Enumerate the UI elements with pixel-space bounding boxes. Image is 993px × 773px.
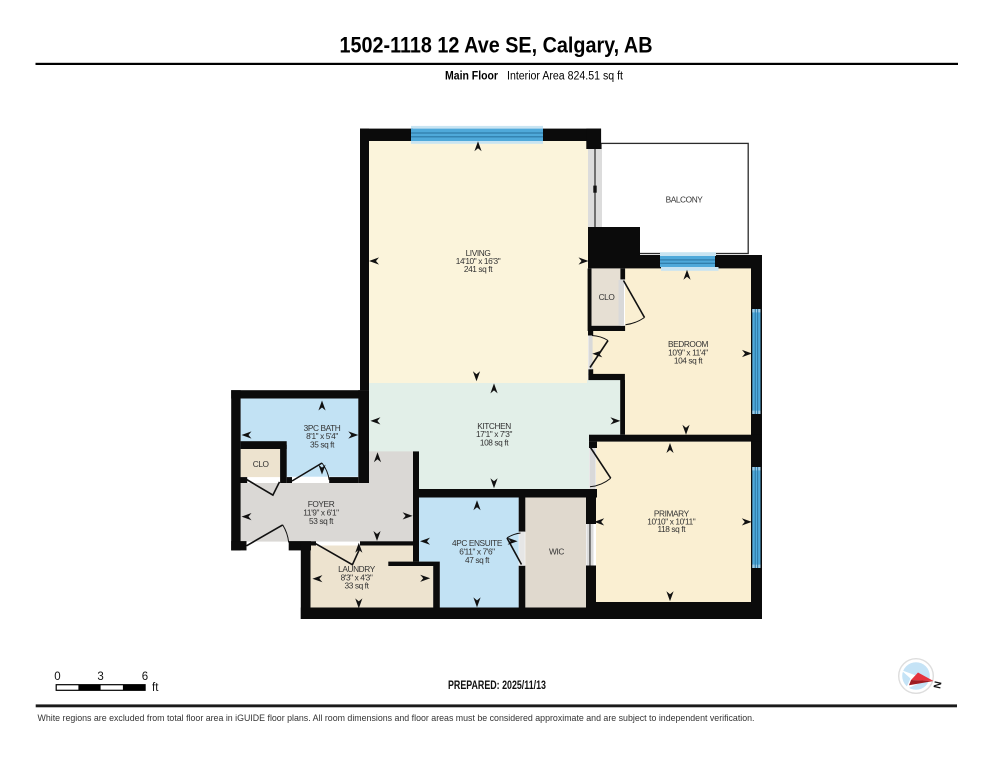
svg-text:WIC: WIC (549, 547, 564, 557)
svg-text:BALCONY: BALCONY (666, 195, 704, 205)
svg-text:118 sq ft: 118 sq ft (657, 524, 686, 534)
svg-text:53 sq ft: 53 sq ft (309, 516, 334, 526)
svg-text:0: 0 (54, 671, 60, 683)
svg-text:CLO: CLO (253, 459, 270, 469)
svg-text:3: 3 (97, 671, 103, 683)
svg-text:PREPARED: 2025/11/13: PREPARED: 2025/11/13 (448, 678, 546, 692)
svg-text:White regions are excluded fro: White regions are excluded from total fl… (38, 713, 755, 723)
svg-text:108 sq ft: 108 sq ft (480, 437, 509, 447)
svg-text:Interior Area 824.51 sq ft: Interior Area 824.51 sq ft (507, 70, 624, 82)
svg-text:Main Floor: Main Floor (445, 70, 498, 82)
svg-text:33 sq ft: 33 sq ft (344, 581, 369, 591)
svg-text:1502-1118 12 Ave SE, Calgary,: 1502-1118 12 Ave SE, Calgary, AB (340, 33, 653, 58)
svg-text:6: 6 (142, 671, 148, 683)
svg-text:35 sq ft: 35 sq ft (310, 440, 335, 450)
svg-text:ft: ft (152, 682, 159, 694)
svg-text:CLO: CLO (599, 292, 616, 302)
svg-text:104 sq ft: 104 sq ft (674, 356, 703, 366)
svg-text:47 sq ft: 47 sq ft (465, 555, 490, 565)
svg-text:241 sq ft: 241 sq ft (464, 264, 493, 274)
